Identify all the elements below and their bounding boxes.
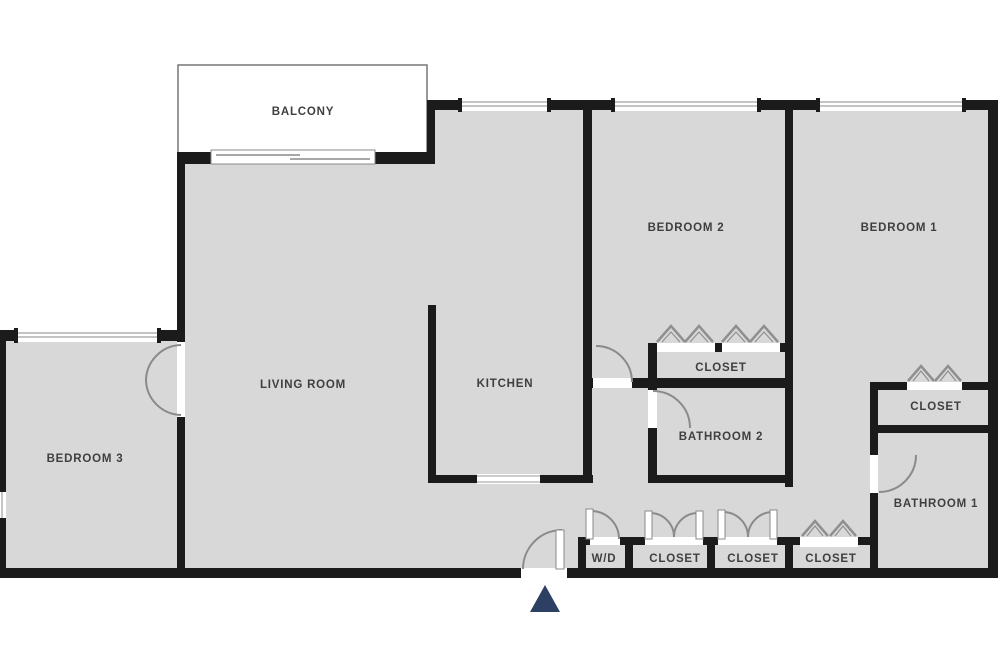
room-label-closet-bedroom-1: CLOSET [910,401,961,413]
kitchen-window-icon [458,98,551,112]
bedroom3-side-window-icon [0,488,6,522]
balcony-slider-icon [211,150,375,164]
room-label-wd: W/D [592,553,617,565]
bedroom3-window-icon [14,328,161,343]
bedroom2-closet-post [715,343,722,352]
floor-plan: BALCONY BEDROOM 2 BEDROOM 1 LIVING ROOM … [0,0,1000,666]
room-label-living-room: LIVING ROOM [260,379,346,391]
entry-arrow-icon [530,585,560,612]
bedroom2-window-icon [611,98,761,112]
room-label-closet-vestibule: CLOSET [805,553,856,565]
room-label-bedroom-2: BEDROOM 2 [648,222,725,234]
bedroom1-window-icon [816,98,966,112]
room-label-closet-hall-2: CLOSET [727,553,778,565]
room-label-bedroom-1: BEDROOM 1 [861,222,938,234]
room-label-closet-hall-1: CLOSET [649,553,700,565]
room-label-closet-bedroom-2: CLOSET [695,362,746,374]
room-label-balcony: BALCONY [272,106,334,118]
floor-plan-svg: BALCONY BEDROOM 2 BEDROOM 1 LIVING ROOM … [0,0,1000,666]
kitchen-passthrough-icon [477,474,540,484]
room-label-kitchen: KITCHEN [477,378,534,390]
room-label-bathroom-1: BATHROOM 1 [894,498,978,510]
room-label-bathroom-2: BATHROOM 2 [679,431,763,443]
room-label-bedroom-3: BEDROOM 3 [47,453,124,465]
